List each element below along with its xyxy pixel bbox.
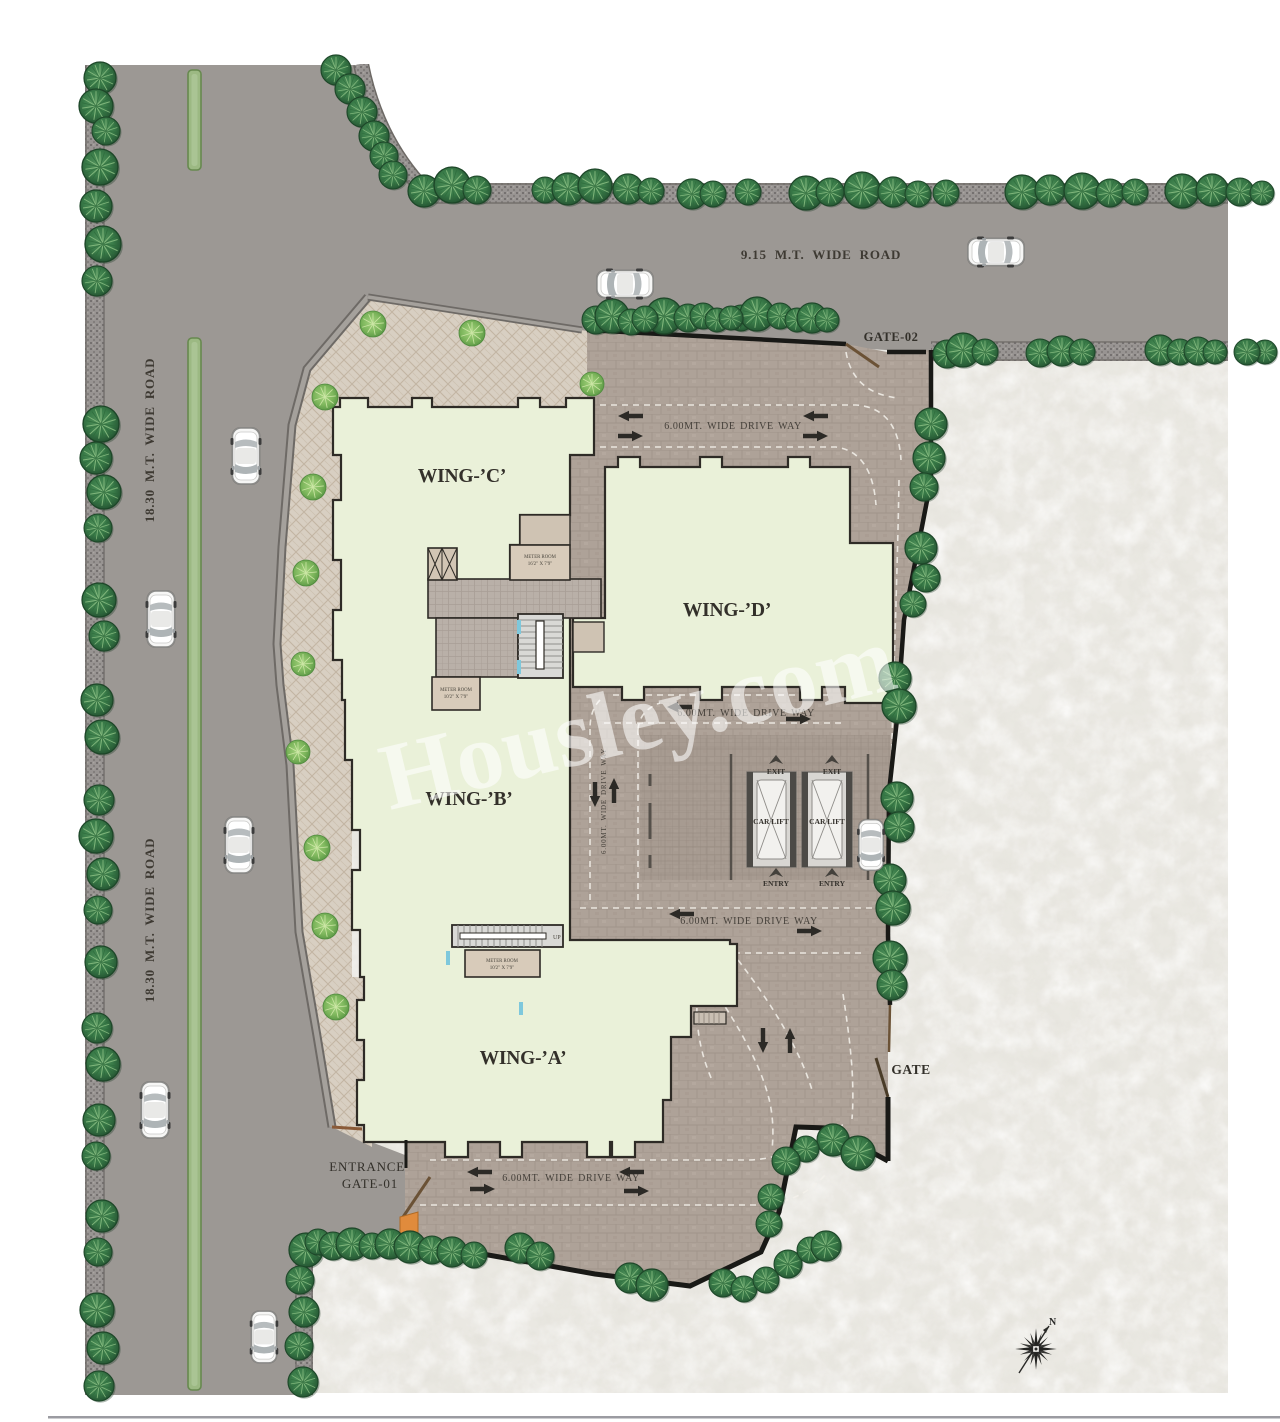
svg-text:EXIT: EXIT bbox=[823, 767, 841, 776]
svg-text:GATE-01: GATE-01 bbox=[342, 1176, 398, 1191]
svg-text:GATE-02: GATE-02 bbox=[864, 330, 919, 344]
svg-text:CAR LIFT: CAR LIFT bbox=[809, 817, 845, 826]
svg-text:EXIT: EXIT bbox=[767, 767, 785, 776]
svg-text:WING-’D’: WING-’D’ bbox=[683, 600, 771, 621]
svg-text:18.30 M.T. WIDE ROAD: 18.30 M.T. WIDE ROAD bbox=[142, 838, 157, 1003]
svg-text:6.00MT. WIDE DRIVE WAY: 6.00MT. WIDE DRIVE WAY bbox=[664, 421, 802, 432]
svg-text:18.30 M.T. WIDE ROAD: 18.30 M.T. WIDE ROAD bbox=[142, 358, 157, 523]
svg-text:16'2" X 7'9": 16'2" X 7'9" bbox=[528, 562, 553, 567]
svg-text:WING-’C’: WING-’C’ bbox=[418, 466, 506, 487]
svg-text:N: N bbox=[1049, 1317, 1057, 1328]
svg-text:ENTRY: ENTRY bbox=[819, 879, 846, 888]
svg-text:METER ROOM: METER ROOM bbox=[524, 555, 557, 560]
svg-text:ENTRY: ENTRY bbox=[763, 879, 790, 888]
svg-text:10'2" X 7'9": 10'2" X 7'9" bbox=[444, 695, 469, 700]
svg-text:6.00MT. WIDE DRIVE WAY: 6.00MT. WIDE DRIVE WAY bbox=[680, 916, 818, 927]
svg-text:METER ROOM: METER ROOM bbox=[486, 959, 519, 964]
svg-text:9.15 M.T. WIDE ROAD: 9.15 M.T. WIDE ROAD bbox=[741, 247, 901, 262]
svg-text:METER ROOM: METER ROOM bbox=[440, 688, 473, 693]
svg-text:WING-’A’: WING-’A’ bbox=[480, 1048, 567, 1069]
svg-text:10'2" X 7'9": 10'2" X 7'9" bbox=[490, 966, 515, 971]
svg-text:6.00MT. WIDE DRIVE WAY: 6.00MT. WIDE DRIVE WAY bbox=[502, 1173, 640, 1184]
svg-text:UP: UP bbox=[553, 935, 561, 941]
svg-text:CAR LIFT: CAR LIFT bbox=[753, 817, 789, 826]
svg-text:GATE: GATE bbox=[891, 1062, 930, 1077]
svg-text:ENTRANCE: ENTRANCE bbox=[329, 1159, 405, 1174]
